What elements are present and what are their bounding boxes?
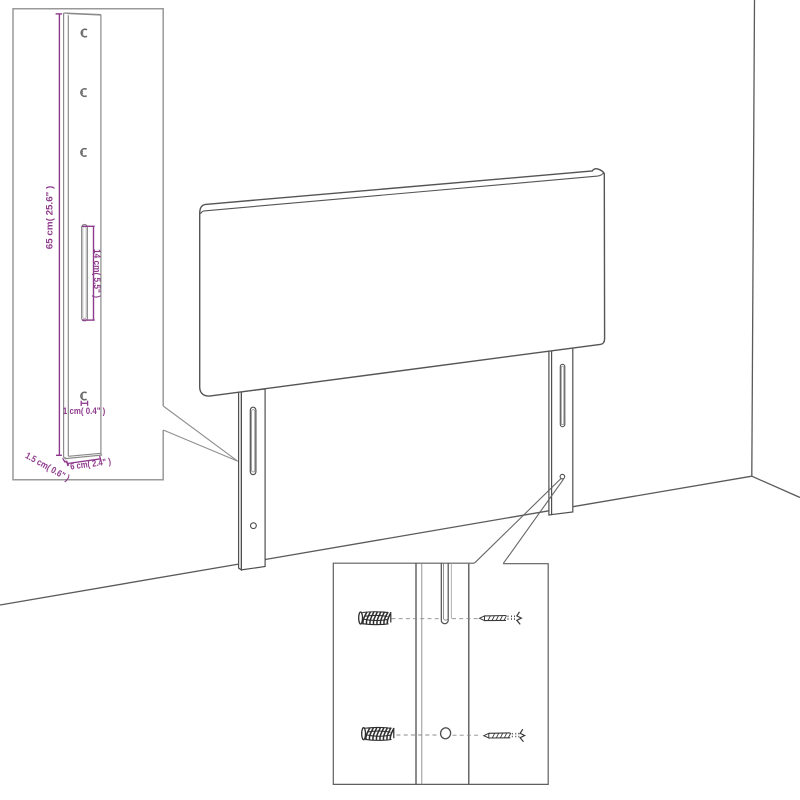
svg-text:6 cm( 2.4" ): 6 cm( 2.4" ) (70, 456, 112, 471)
svg-text:1 cm( 0.4" ): 1 cm( 0.4" ) (63, 406, 105, 416)
svg-text:14 cm( 5.5" ): 14 cm( 5.5" ) (92, 249, 102, 298)
svg-text:65 cm( 25.6" ): 65 cm( 25.6" ) (45, 186, 55, 250)
